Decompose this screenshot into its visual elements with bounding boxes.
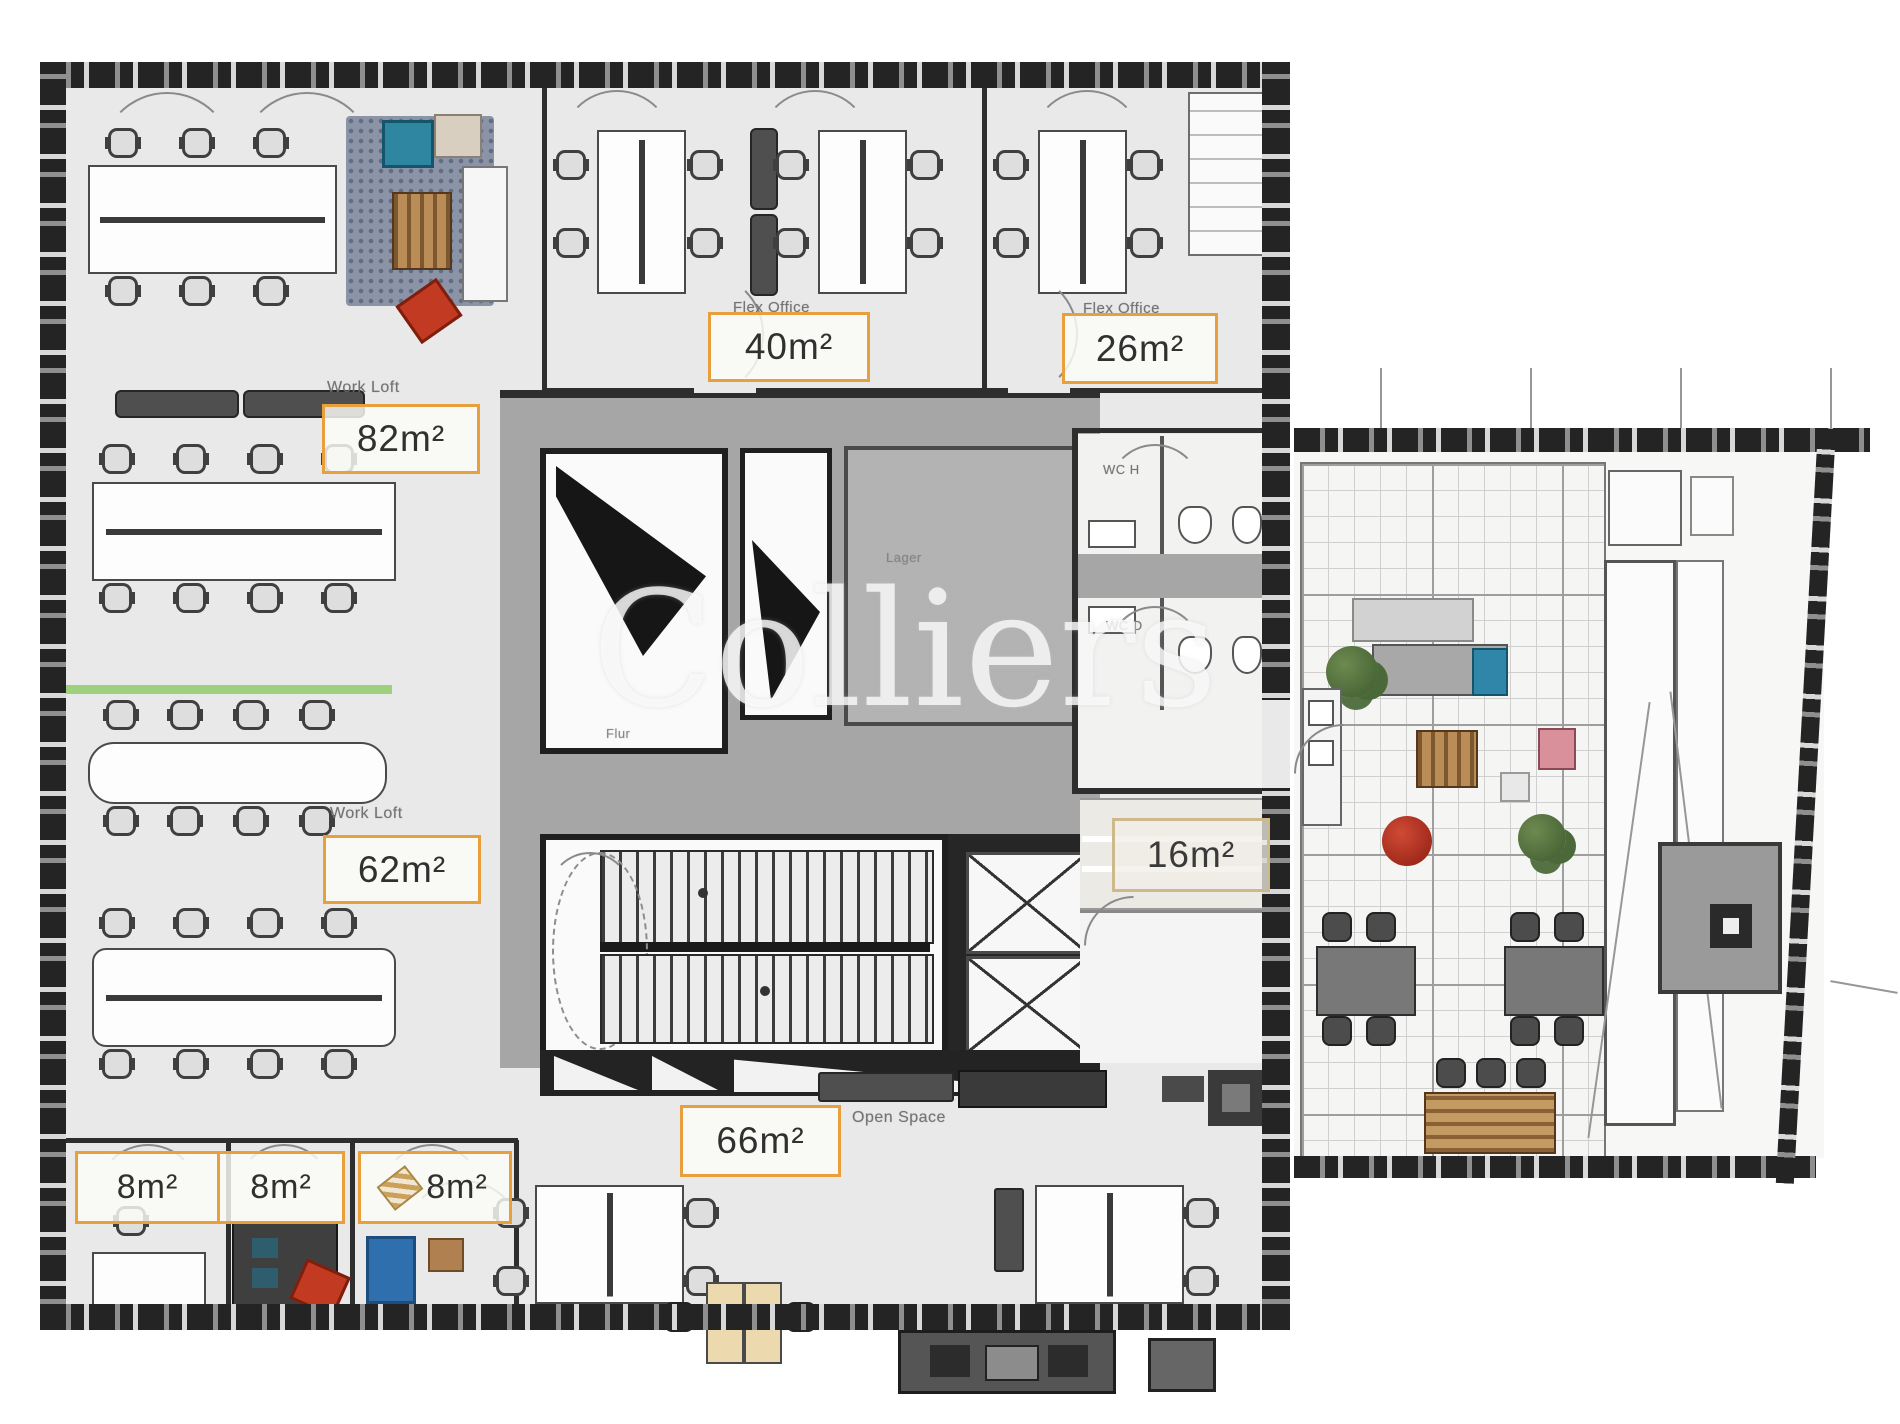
desk (92, 1252, 206, 1306)
closet-shelf (1188, 92, 1264, 256)
toilet (1232, 636, 1262, 674)
elevator-car (966, 852, 1088, 954)
annex-wall-top (1294, 428, 1870, 452)
dining-table (1316, 946, 1416, 1016)
room-label: WC D (1106, 618, 1143, 633)
monitor (252, 1268, 278, 1288)
entrance-detail (985, 1345, 1039, 1381)
area-box-26: 26m² (1062, 313, 1218, 384)
annex-door-gap (1262, 700, 1290, 788)
survey-tick (1830, 368, 1832, 428)
chair (170, 806, 200, 836)
chair (102, 444, 132, 474)
chair (686, 1198, 716, 1228)
area-box-40: 40m² (708, 312, 870, 382)
chair (250, 1049, 280, 1079)
chair (556, 228, 586, 258)
dining-table (1504, 946, 1604, 1016)
room-label: Work Loft (327, 379, 400, 397)
chair (106, 806, 136, 836)
chair (302, 700, 332, 730)
partition-wall (350, 1140, 355, 1304)
entrance-detail (1048, 1345, 1088, 1377)
partition-wall (542, 388, 1266, 393)
area-box-62: 62m² (323, 835, 481, 904)
pink-chair (1538, 728, 1576, 770)
shaft-box (1208, 1070, 1264, 1126)
room-label: WC H (1103, 462, 1140, 477)
chair (910, 228, 940, 258)
red-pouf (1382, 816, 1432, 866)
side-table (1500, 772, 1530, 802)
chair (176, 1049, 206, 1079)
wc-corridor-band (1076, 554, 1264, 598)
area-box-8-left: 8m² (75, 1151, 220, 1224)
chair (996, 150, 1026, 180)
chair (324, 583, 354, 613)
survey-tick (1380, 368, 1382, 428)
chair (236, 700, 266, 730)
chair-dark (1510, 1016, 1540, 1046)
desk-bench (92, 948, 396, 1047)
hatched-marker-icon (377, 1165, 424, 1211)
stair-post (760, 986, 770, 996)
chair (302, 806, 332, 836)
room-label: Open Space (852, 1109, 946, 1127)
door-arc (100, 92, 234, 226)
chair-dark (1322, 1016, 1352, 1046)
room-label: Work Loft (330, 805, 403, 823)
area-box-82: 82m² (322, 404, 480, 474)
chair-dark (1554, 1016, 1584, 1046)
wc-top-wall (1072, 428, 1264, 433)
chair-dark (1510, 912, 1540, 942)
toilet (1232, 506, 1262, 544)
chair (176, 583, 206, 613)
desk-bench (535, 1185, 684, 1304)
door-arc (560, 90, 674, 204)
chair (910, 150, 940, 180)
door-arc (1108, 444, 1202, 538)
cabinet (994, 1188, 1024, 1272)
chair (250, 583, 280, 613)
elevator-car (966, 956, 1088, 1054)
lounge-armchair-teal (382, 120, 434, 168)
door-arc (954, 272, 1078, 396)
monitor (252, 1238, 278, 1258)
chair (176, 908, 206, 938)
door-arc (548, 852, 632, 936)
lounge-wood-table (392, 192, 452, 270)
blue-cushion (1472, 648, 1508, 696)
partition-wall (66, 1138, 518, 1143)
chair (108, 276, 138, 306)
chair (690, 150, 720, 180)
chair (182, 276, 212, 306)
desk-bench (92, 482, 396, 581)
coffee-table-wood (1416, 730, 1478, 788)
counter-appliance (1308, 700, 1334, 726)
cabinet (750, 214, 778, 296)
roof-structure (1690, 476, 1734, 536)
chair (1130, 228, 1160, 258)
annex-sofa-long (1352, 598, 1474, 642)
chair (1186, 1266, 1216, 1296)
room-label: Lager (886, 550, 922, 565)
door-arc (1030, 90, 1144, 204)
partition-wall (542, 88, 547, 392)
room-label: Flur (606, 726, 630, 741)
chair-dark (1436, 1058, 1466, 1088)
chair (690, 228, 720, 258)
green-highlight-strip (62, 685, 392, 694)
chair (324, 908, 354, 938)
chair (106, 700, 136, 730)
chair (776, 228, 806, 258)
sideboard-dark (958, 1070, 1107, 1108)
shaft-inner (1222, 1084, 1250, 1112)
roof-machine-core (1710, 904, 1752, 948)
roof-machine-center (1723, 918, 1739, 934)
chair (1186, 1198, 1216, 1228)
area-box-16: 16m² (1112, 818, 1270, 892)
door-arc (758, 90, 872, 204)
chair-dark (1366, 1016, 1396, 1046)
outer-wall-left (40, 62, 66, 1330)
wc-left-wall (1072, 430, 1078, 792)
stair-post (698, 888, 708, 898)
chair (996, 228, 1026, 258)
annex-wall-bottom (1294, 1156, 1816, 1178)
chair (236, 806, 266, 836)
chair-dark (1322, 912, 1352, 942)
storage-room (844, 446, 1084, 726)
entrance-detail (930, 1345, 970, 1377)
roof-structure (1608, 470, 1682, 546)
stair-flight-lower (600, 954, 934, 1044)
roof-machine (1658, 842, 1782, 994)
plant-icon (1518, 814, 1566, 862)
skylight-panel (1676, 560, 1724, 1112)
sideboard-small (1162, 1076, 1204, 1102)
chair (250, 908, 280, 938)
chair-dark (1554, 912, 1584, 942)
stair-flight-upper (600, 850, 934, 944)
chair (256, 276, 286, 306)
chair-dark (1516, 1058, 1546, 1088)
chair (170, 700, 200, 730)
entrance-detail (1148, 1338, 1216, 1392)
area-box-8-middle: 8m² (217, 1151, 345, 1224)
wc-bottom-wall (1072, 788, 1264, 794)
sideboard (818, 1072, 954, 1102)
lounge-cushion (434, 114, 482, 158)
area-box-8-right: 8m² (358, 1151, 512, 1224)
chair (250, 444, 280, 474)
outer-wall-bottom (40, 1304, 1290, 1330)
survey-tick (1530, 368, 1532, 428)
survey-line (1830, 980, 1897, 994)
desk-bench (1035, 1185, 1184, 1304)
outer-wall-right (1262, 62, 1290, 1330)
floor-plan: Work Loft Flex Office Flex Office WC H W… (0, 0, 1900, 1424)
chair-dark (1366, 912, 1396, 942)
outer-wall-top (40, 62, 1290, 88)
survey-tick (1680, 368, 1682, 428)
door-arc (240, 92, 374, 226)
chair-dark (1476, 1058, 1506, 1088)
chair (102, 583, 132, 613)
stair-landing-divider (600, 942, 930, 952)
chair (176, 444, 206, 474)
long-wood-table (1424, 1092, 1556, 1154)
chair (324, 1049, 354, 1079)
chair (102, 1049, 132, 1079)
area-box-66: 66m² (680, 1105, 841, 1177)
lounge-cabinet (462, 166, 508, 302)
area-box-8-right-value: 8m² (426, 1168, 488, 1207)
desk-bench-rounded (88, 742, 387, 804)
